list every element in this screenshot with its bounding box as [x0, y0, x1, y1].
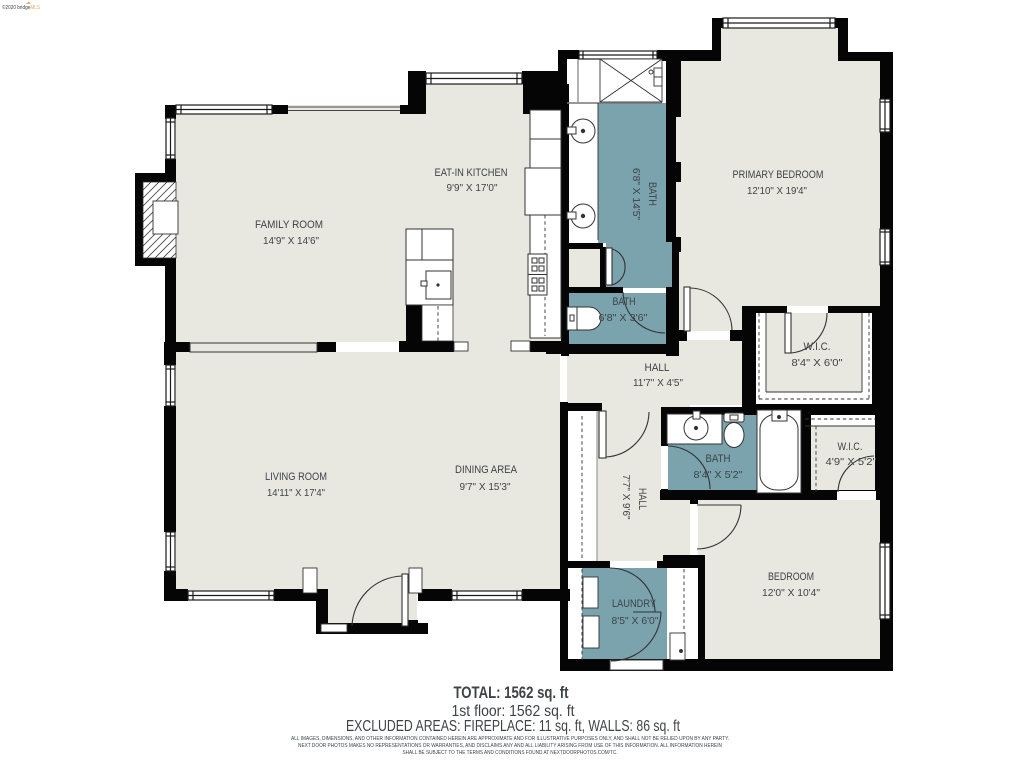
svg-text:©2020 bridgeMLS: ©2020 bridgeMLS	[2, 4, 40, 11]
svg-text:BATH: BATH	[646, 182, 658, 206]
svg-text:PRIMARY BEDROOM: PRIMARY BEDROOM	[733, 169, 824, 181]
svg-text:LAUNDRY: LAUNDRY	[612, 598, 657, 610]
svg-text:BATH: BATH	[613, 296, 636, 308]
svg-text:8'5" X 6'0": 8'5" X 6'0"	[612, 615, 659, 627]
svg-text:LIVING ROOM: LIVING ROOM	[265, 471, 327, 483]
svg-text:EAT-IN KITCHEN: EAT-IN KITCHEN	[435, 167, 508, 179]
svg-text:12'0" X 10'4": 12'0" X 10'4"	[762, 587, 820, 599]
svg-text:6'8" X 14'5": 6'8" X 14'5"	[630, 168, 642, 220]
svg-text:SHALL BE SUBJECT TO THE TERMS: SHALL BE SUBJECT TO THE TERMS AND CONDIT…	[403, 750, 618, 756]
svg-text:11'7" X 4'5": 11'7" X 4'5"	[633, 377, 683, 389]
svg-text:4'9" X 5'2": 4'9" X 5'2"	[826, 456, 877, 468]
svg-text:14'9" X 14'6": 14'9" X 14'6"	[263, 235, 319, 247]
svg-text:FAMILY ROOM: FAMILY ROOM	[255, 219, 323, 231]
svg-text:TOTAL: 1562 sq. ft: TOTAL: 1562 sq. ft	[454, 683, 569, 702]
svg-text:8'4" X 5'2": 8'4" X 5'2"	[694, 469, 743, 481]
svg-text:BATH: BATH	[706, 453, 731, 465]
svg-text:W.I.C.: W.I.C.	[804, 341, 831, 353]
svg-text:NEXT DOOR PHOTOS MAKES NO REPR: NEXT DOOR PHOTOS MAKES NO REPRESENTATION…	[298, 743, 722, 749]
svg-text:8'4" X 6'0": 8'4" X 6'0"	[792, 357, 843, 369]
svg-text:EXCLUDED AREAS: FIREPLACE: 11: EXCLUDED AREAS: FIREPLACE: 11 sq. ft, WA…	[346, 718, 680, 735]
svg-text:6'8" X 3'6": 6'8" X 3'6"	[599, 312, 648, 324]
svg-text:12'10" X 19'4": 12'10" X 19'4"	[747, 185, 807, 197]
svg-text:7'7" X 9'6": 7'7" X 9'6"	[620, 475, 632, 520]
svg-text:HALL: HALL	[645, 362, 670, 374]
svg-text:9'7" X 15'3": 9'7" X 15'3"	[460, 481, 511, 493]
svg-text:BEDROOM: BEDROOM	[768, 571, 814, 583]
svg-text:ALL IMAGES, DIMENSIONS, AND OT: ALL IMAGES, DIMENSIONS, AND OTHER INFORM…	[291, 736, 729, 742]
svg-text:HALL: HALL	[636, 488, 648, 510]
svg-text:W.I.C.: W.I.C.	[838, 441, 863, 453]
svg-text:9'9" X 17'0": 9'9" X 17'0"	[447, 182, 498, 194]
svg-text:DINING AREA: DINING AREA	[455, 464, 518, 476]
svg-text:14'11" X 17'4": 14'11" X 17'4"	[267, 487, 325, 499]
